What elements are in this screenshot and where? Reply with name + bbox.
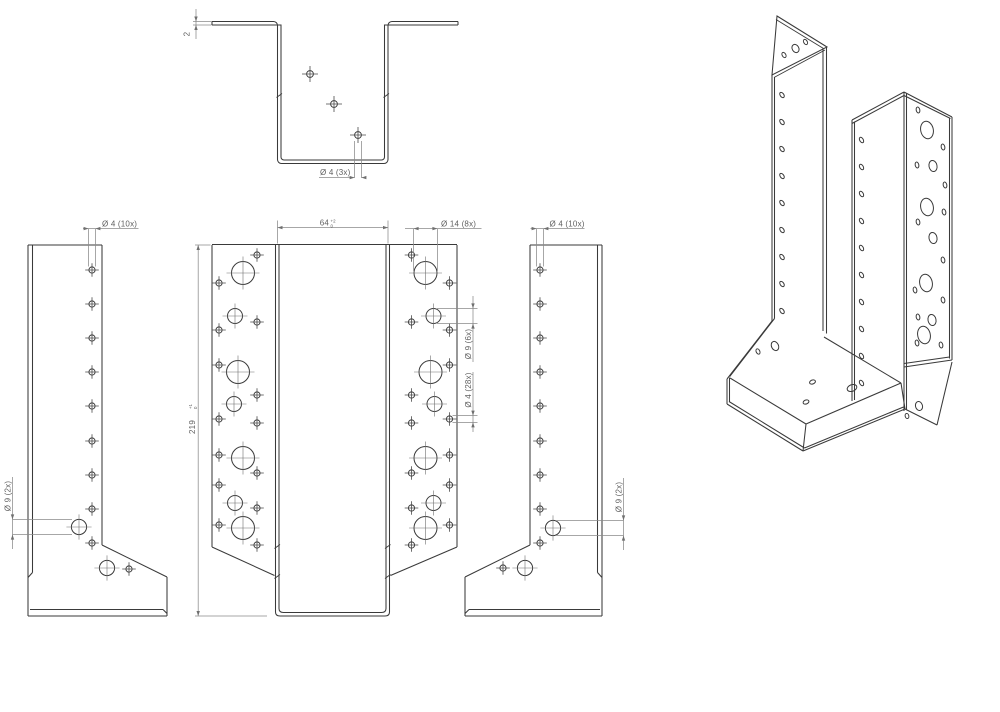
side-view-left bbox=[28, 245, 167, 616]
side-view-right bbox=[465, 245, 602, 616]
dim-left-flange-big-label: Ø 9 (2x) bbox=[4, 481, 13, 512]
dim-left-flange-holes-label: Ø 4 (10x) bbox=[102, 220, 137, 229]
dim-thickness-label: 2 bbox=[183, 31, 192, 36]
dim-wing-big-label: Ø 14 (8x) bbox=[441, 220, 476, 229]
dim-right-flange-holes-label: Ø 4 (10x) bbox=[550, 220, 585, 229]
technical-drawing-sheet: 2 Ø 4 (3x) Ø 4 (10x) Ø 9 (2x) 64 +2 0 21… bbox=[0, 0, 1000, 712]
dim-right-flange-big-label: Ø 9 (2x) bbox=[615, 482, 624, 513]
isometric-view bbox=[727, 16, 952, 451]
front-view bbox=[212, 245, 457, 617]
dim-seat-holes-label: Ø 4 (3x) bbox=[320, 168, 351, 177]
dim-height-tol-lower: 0 bbox=[193, 406, 198, 409]
dim-height-label: 219 bbox=[188, 420, 197, 434]
drawing-svg: 2 Ø 4 (3x) Ø 4 (10x) Ø 9 (2x) 64 +2 0 21… bbox=[0, 0, 1000, 712]
dim-wing-med-label: Ø 9 (6x) bbox=[464, 329, 473, 360]
dimensions bbox=[11, 9, 625, 616]
drawing-linework bbox=[11, 9, 952, 616]
dim-width-label: 64 bbox=[320, 219, 330, 228]
top-view bbox=[212, 22, 458, 164]
dim-wing-small-label: Ø 4 (28x) bbox=[464, 372, 473, 407]
